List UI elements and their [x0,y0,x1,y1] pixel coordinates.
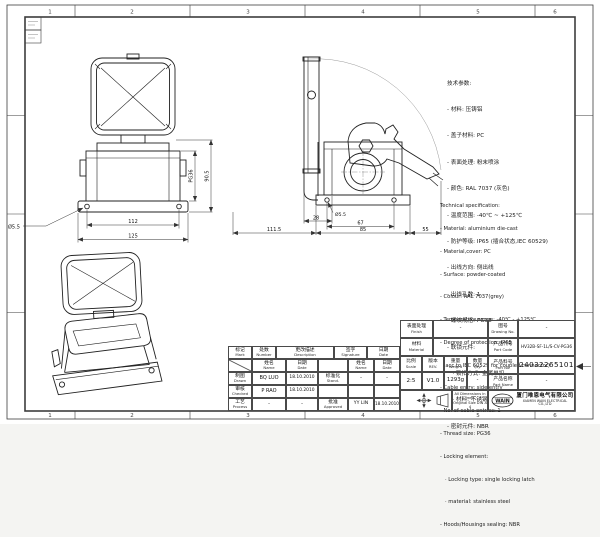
tb-part-code-value: HV32B-SF-1L/S-CV-PG36 [518,338,575,356]
dim-125: 125 [128,234,138,240]
spec-line: - Hoods/Housings sealing: NBR [440,522,576,530]
tb-number-header: 处数 Number [252,346,276,359]
tb-blank-cell [228,359,252,372]
tb-name-header: 姓名 Name [252,359,286,372]
tb-part-no-value: 1240322651013 [518,356,575,374]
spec-cn-title: 技术参数: [447,80,575,89]
latch [348,123,443,186]
svg-text:3: 3 [246,10,250,16]
tb-material-label: 材料 Material [400,338,433,356]
svg-text:4: 4 [361,413,365,419]
tb-process-name: - [252,398,286,411]
pictorial-cover-view [61,252,143,320]
tb-approved-date: 18.10.2010 [374,398,400,411]
dim-55: 55 [422,227,428,233]
svg-text:2: 2 [130,10,134,16]
side-view-dim-labels: 28 Ø5.5 67 111.5 85 55 [267,211,429,233]
tb-date-header: 日期 Date [286,359,318,372]
company-names: 厦门唯恩电气有限公司 XIAMEN WAIN ELECTRICAL CO.,LT… [516,394,574,407]
tb-checked-date: 18.10.2010 [286,385,318,398]
spec-line: - Material: aluminium die-cast [440,226,576,234]
tb-blank-cell [374,385,400,398]
svg-text:1: 1 [48,10,52,16]
tb-symbols-cell [400,390,452,411]
edge-arrow-mark [576,363,591,370]
dim-85: 85 [360,227,366,233]
tb-approved-name: YY LIN [348,398,374,411]
spec-line: - Colour: RAL 7037(grey) [440,294,576,302]
front-view [78,54,188,212]
dim-90-5: 90.5 [205,170,211,181]
tb-part-name-value: - [518,374,575,390]
tb-mark-header: 标记 Mark [228,346,252,359]
tb-finish-label: 表面处理 Finish [400,320,433,338]
svg-text:3: 3 [246,413,250,419]
tb-rev-label: 版本 REV. [422,356,444,372]
dim-67: 67 [357,221,363,227]
tb-finish-value: - [433,320,488,338]
dim-28: 28 [313,216,319,222]
svg-text:4: 4 [361,10,365,16]
tb-scale-label: 比例 Scale [400,356,422,372]
company-name-en: XIAMEN WAIN ELECTRICAL CO.,LTD [516,400,574,407]
tb-description-header: 更改描述 Description [276,346,334,359]
tb-drawn-label: 制图 Drawn [228,372,252,385]
tb-checked-name: P RAO [252,385,286,398]
tb-date-header: 日期 Date [367,346,400,359]
spec-line: - Material,cover: PC [440,249,576,257]
spec-line: - Thread size: PG36 [440,431,576,439]
tb-standard-date: - [374,372,400,385]
spec-line: - 表面处理: 粉末喷涂 [447,159,575,168]
corner-block [25,17,41,43]
spec-line: · Locking type: single locking latch [440,477,576,485]
pictorial-open-view [51,313,163,395]
front-view-dimensions [23,140,213,243]
tb-company-cell: 厦门唯恩电气有限公司 XIAMEN WAIN ELECTRICAL CO.,LT… [488,390,575,411]
spec-line: · material: stainless steel [440,499,576,507]
tb-blank-cell [318,359,348,372]
tb-qty-label: 数量 Qty. [467,356,488,372]
tb-process-label: 工艺 Process [228,398,252,411]
side-view [303,57,443,205]
svg-text:2: 2 [130,413,134,419]
tb-material-value: - [433,338,488,356]
tb-drawing-no-label: 图号 Drawing No. [488,320,518,338]
svg-text:6: 6 [553,10,557,16]
tb-process-date: - [286,398,318,411]
spec-en-title: Technical specification: [440,203,576,211]
tb-drawing-no-value: - [518,320,575,338]
spec-line: - 材料: 压铸铝 [447,106,575,115]
tb-name-header: 姓名 Name [348,359,374,372]
tb-qty-value: - [467,372,488,390]
tb-dimension-note: All Dimensions in mm Original Size DIN A… [452,390,488,411]
dim-hole-side: Ø5.5 [335,211,346,218]
spec-line: - Surface: powder-coated [440,272,576,280]
tb-date-header: 日期 Date [374,359,400,372]
tb-standard-name: - [348,372,374,385]
dim-hole-front: Ø5.5 [8,224,20,231]
tb-part-name-label: 产品名称 Part Name [488,374,518,390]
tb-signature-header: 签字 Signature [334,346,367,359]
dim-112: 112 [128,219,138,225]
tb-standard-label: 标准化 Stand. [318,372,348,385]
dim-111-5: 111.5 [267,227,281,233]
tb-weight-label: 重量 Weight [444,356,467,372]
tb-blank-cell [318,385,348,398]
tb-drawn-name: BQ LUO [252,372,286,385]
tb-weight-value: 1293g [444,372,467,390]
spec-line: - 盖子材料: PC [447,132,575,141]
tb-part-no-label: 产品料号 Part No. [488,356,518,374]
tb-drawn-date: 18.10.2010 [286,372,318,385]
dim-pg36: PG36 [189,169,195,182]
tb-approved-label: 批准 Approved [318,398,348,411]
drawing-sheet: 1 2 3 4 5 6 1 2 3 4 5 6 [0,0,600,424]
spec-line: - Locking element: [440,454,576,462]
tb-blank-cell [348,385,374,398]
tb-part-code-label: 产品代号 Part Code [488,338,518,356]
tb-scale-value: 2:5 [400,372,422,390]
svg-text:1: 1 [48,413,52,419]
tb-checked-label: 审核 Checked [228,385,252,398]
svg-text:5: 5 [476,10,480,16]
tb-rev-value: V1.0 [422,372,444,390]
side-view-dimensions [233,176,441,235]
